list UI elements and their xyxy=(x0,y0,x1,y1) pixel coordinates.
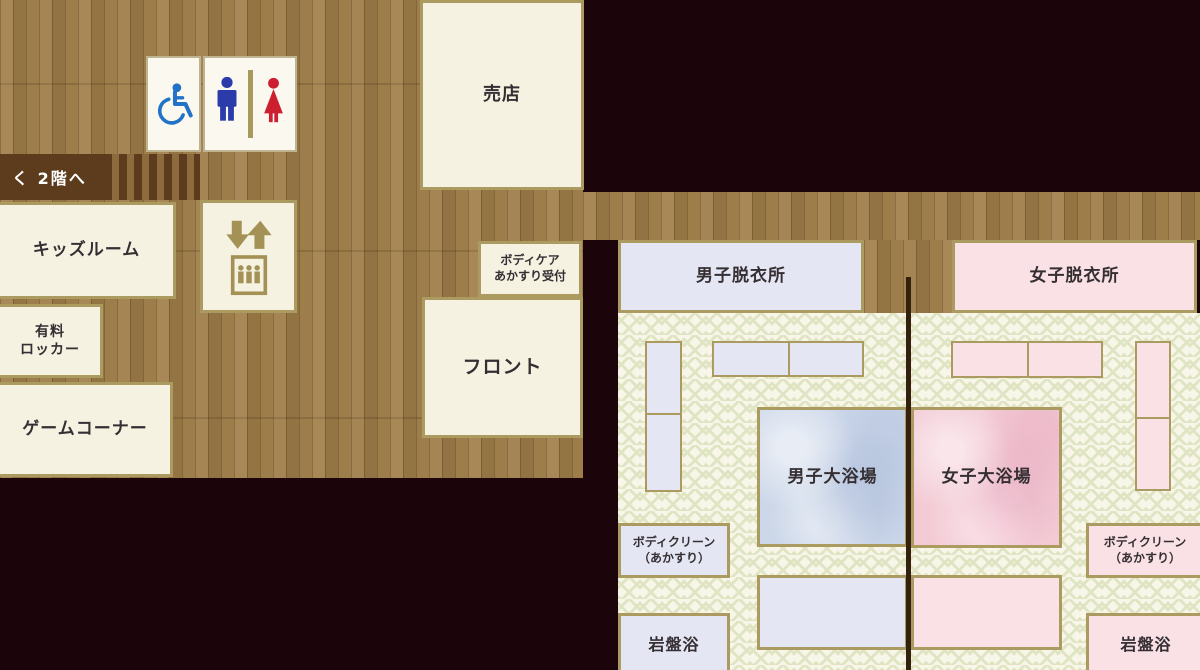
womens-bodyclean-room: ボディクリーン （あかすり） xyxy=(1086,523,1200,578)
front-desk-label: フロント xyxy=(462,355,542,380)
womens-utility-box xyxy=(911,575,1062,650)
womens-bath-room: 女子大浴場 xyxy=(911,407,1062,548)
mens-bath-label: 男子大浴場 xyxy=(788,466,878,488)
womens-bodyclean-label-2: （あかすり） xyxy=(1109,551,1181,567)
elevator-icon xyxy=(220,214,278,300)
mens-dressing-room: 男子脱衣所 xyxy=(618,240,864,313)
womens-dressing-label: 女子脱衣所 xyxy=(1030,265,1120,287)
womens-locker-vertical xyxy=(1135,341,1171,491)
paid-locker-label-1: 有料 xyxy=(35,323,65,341)
accessible-toilet-box xyxy=(146,56,201,152)
kids-room: キッズルーム xyxy=(0,202,176,299)
wood-floor-corridor xyxy=(583,192,1200,240)
bodycare-reception-room: ボディケア あかすり受付 xyxy=(478,241,582,297)
shop-room: 売店 xyxy=(420,0,584,190)
locker-divider xyxy=(788,343,790,375)
bodycare-label-2: あかすり受付 xyxy=(494,269,566,285)
front-desk-room: フロント xyxy=(422,297,583,438)
shop-label: 売店 xyxy=(483,83,521,106)
locker-divider xyxy=(1137,417,1169,419)
mens-utility-box xyxy=(757,575,908,650)
toilet-divider-bar xyxy=(248,70,253,138)
mens-stone-sauna-room: 岩盤浴 xyxy=(618,613,730,670)
mens-toilet-icon xyxy=(213,75,241,133)
womens-dressing-room: 女子脱衣所 xyxy=(952,240,1197,313)
game-corner-room: ゲームコーナー xyxy=(0,382,173,477)
paid-locker-label-2: ロッカー xyxy=(20,341,80,359)
mens-bodyclean-label-2: （あかすり） xyxy=(638,551,710,567)
mens-locker-vertical xyxy=(645,341,682,492)
stairs-label: く 2階へ xyxy=(0,165,87,189)
floor-map: く 2階へ 売店 キッズルーム xyxy=(0,0,1200,670)
paid-locker-room: 有料 ロッカー xyxy=(0,304,103,378)
bodycare-label-1: ボディケア xyxy=(500,253,559,269)
locker-divider xyxy=(647,413,680,415)
womens-locker-horizontal xyxy=(951,341,1103,378)
kids-room-label: キッズルーム xyxy=(33,239,141,261)
mens-bath-room: 男子大浴場 xyxy=(757,407,908,547)
stairs-to-2f: く 2階へ xyxy=(0,154,200,200)
mens-stone-sauna-label: 岩盤浴 xyxy=(648,635,699,656)
womens-stone-sauna-label: 岩盤浴 xyxy=(1120,635,1171,656)
game-corner-label: ゲームコーナー xyxy=(22,418,148,440)
mens-dressing-label: 男子脱衣所 xyxy=(696,265,786,287)
womens-toilet-icon xyxy=(260,77,287,131)
stair-steps xyxy=(112,154,200,200)
mens-locker-horizontal xyxy=(712,341,864,377)
mens-bodyclean-room: ボディクリーン （あかすり） xyxy=(618,523,730,578)
wheelchair-icon xyxy=(153,81,195,127)
womens-bath-label: 女子大浴場 xyxy=(942,466,1032,488)
womens-stone-sauna-room: 岩盤浴 xyxy=(1086,613,1200,670)
mens-womens-toilet-box xyxy=(203,56,297,152)
locker-divider xyxy=(1027,343,1029,376)
elevator-box xyxy=(200,200,297,313)
mens-bodyclean-label-1: ボディクリーン xyxy=(633,535,716,551)
womens-bodyclean-label-1: ボディクリーン xyxy=(1104,535,1187,551)
bath-divider-wall xyxy=(906,277,911,670)
